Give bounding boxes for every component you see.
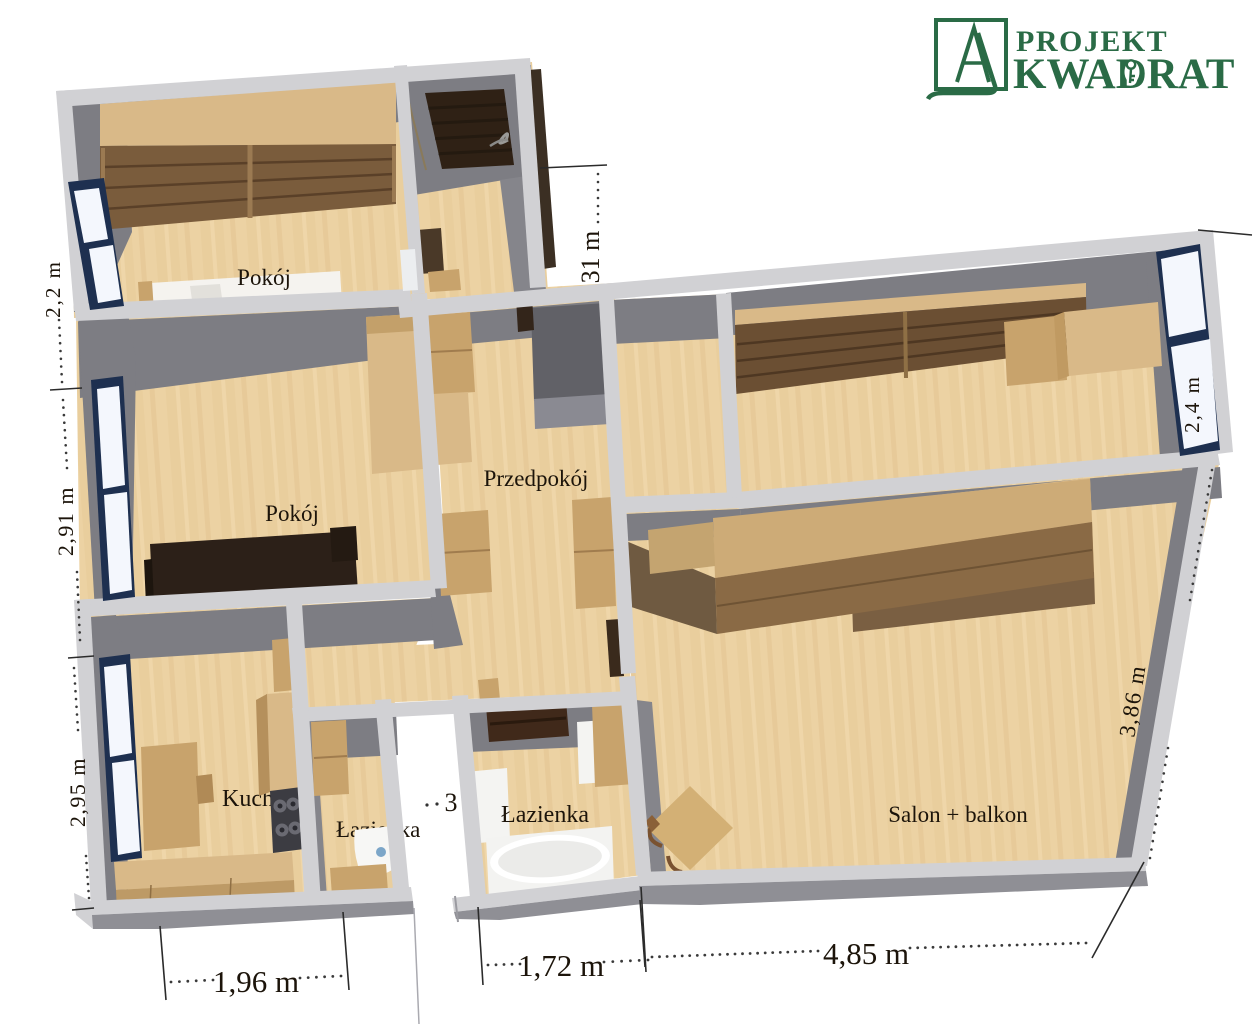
svg-text:1,96 m: 1,96 m <box>213 964 299 999</box>
svg-text:KWADRAT: KWADRAT <box>1013 51 1235 98</box>
svg-text:31 m: 31 m <box>576 231 605 284</box>
svg-text:2,91 m: 2,91 m <box>53 486 78 556</box>
svg-text:Pokój: Pokój <box>237 265 291 290</box>
svg-text:2,95 m: 2,95 m <box>65 757 90 827</box>
svg-text:Salon + balkon: Salon + balkon <box>888 802 1028 827</box>
svg-text:2,2 m: 2,2 m <box>41 260 65 318</box>
svg-text:2,4 m: 2,4 m <box>1180 375 1204 433</box>
svg-text:1,72 m: 1,72 m <box>518 948 604 983</box>
svg-text:3: 3 <box>445 788 458 817</box>
svg-text:Łazienka: Łazienka <box>501 802 589 828</box>
svg-text:Przedpokój: Przedpokój <box>484 466 589 491</box>
svg-text:4,85 m: 4,85 m <box>823 936 909 971</box>
svg-text:Pokój: Pokój <box>265 501 319 526</box>
